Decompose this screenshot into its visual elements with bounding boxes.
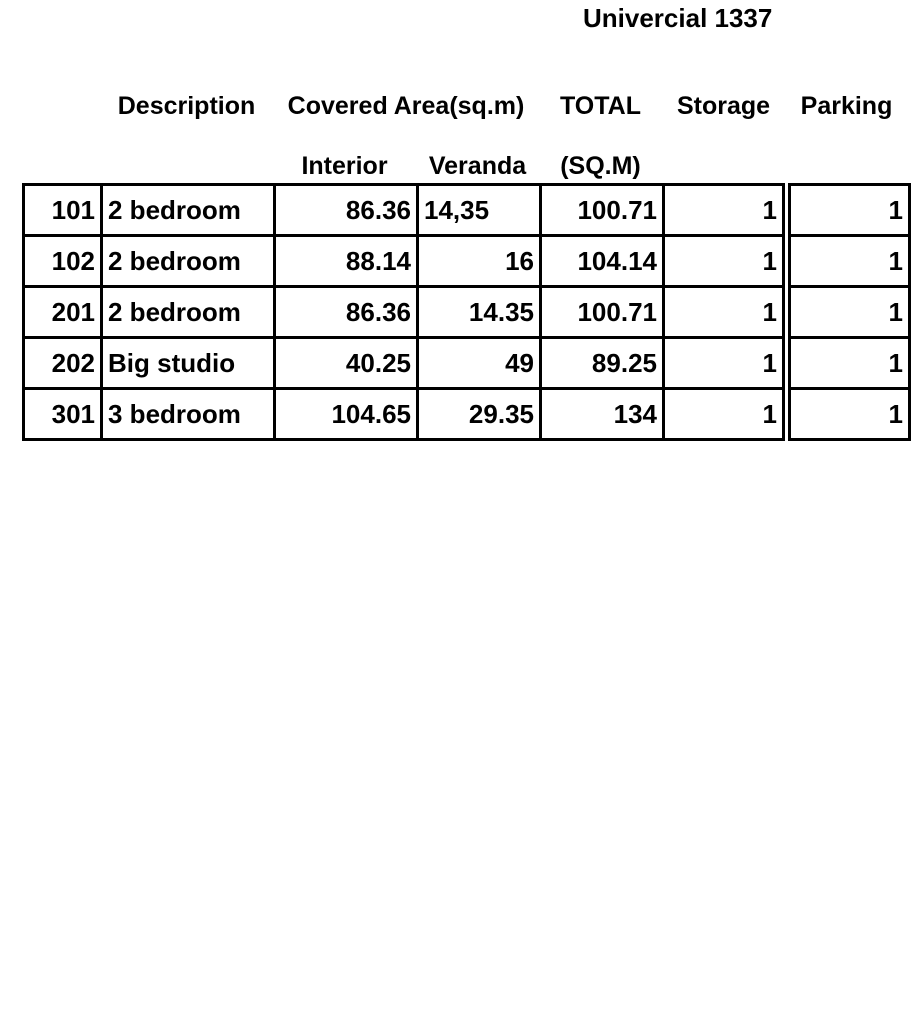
parking-cell: 1 (787, 287, 910, 338)
veranda-cell: 16 (418, 236, 541, 287)
description-cell: 2 bedroom (102, 287, 275, 338)
storage-cell: 1 (664, 236, 787, 287)
interior-cell: 40.25 (275, 338, 418, 389)
table-header-row-1: Description Covered Area(sq.m) TOTAL Sto… (22, 91, 908, 121)
storage-cell: 1 (664, 287, 787, 338)
interior-cell: 86.36 (275, 185, 418, 236)
description-cell: 2 bedroom (102, 185, 275, 236)
parking-cell: 1 (787, 185, 910, 236)
total-cell: 89.25 (541, 338, 664, 389)
unit-number-cell: 102 (24, 236, 102, 287)
veranda-cell: 14,35 (418, 185, 541, 236)
header-covered-area: Covered Area(sq.m) (273, 91, 539, 121)
description-cell: 3 bedroom (102, 389, 275, 440)
header-storage: Storage (662, 91, 785, 121)
interior-cell: 88.14 (275, 236, 418, 287)
interior-cell: 86.36 (275, 287, 418, 338)
header-spacer (22, 91, 100, 121)
parking-cell: 1 (787, 236, 910, 287)
units-table: 101 2 bedroom 86.36 14,35 100.71 1 1 102… (22, 183, 911, 441)
storage-cell: 1 (664, 389, 787, 440)
storage-cell: 1 (664, 338, 787, 389)
header-description: Description (100, 91, 273, 121)
unit-number-cell: 201 (24, 287, 102, 338)
table-row: 201 2 bedroom 86.36 14.35 100.71 1 1 (24, 287, 910, 338)
table-row: 301 3 bedroom 104.65 29.35 134 1 1 (24, 389, 910, 440)
header-spacer (22, 151, 273, 181)
description-cell: 2 bedroom (102, 236, 275, 287)
description-cell: Big studio (102, 338, 275, 389)
veranda-cell: 29.35 (418, 389, 541, 440)
veranda-cell: 49 (418, 338, 541, 389)
table-row: 102 2 bedroom 88.14 16 104.14 1 1 (24, 236, 910, 287)
total-cell: 100.71 (541, 287, 664, 338)
parking-cell: 1 (787, 389, 910, 440)
parking-cell: 1 (787, 338, 910, 389)
header-total: TOTAL (539, 91, 662, 121)
storage-cell: 1 (664, 185, 787, 236)
table-row: 101 2 bedroom 86.36 14,35 100.71 1 1 (24, 185, 910, 236)
veranda-cell: 14.35 (418, 287, 541, 338)
page-title: Univercial 1337 (583, 3, 772, 33)
unit-number-cell: 101 (24, 185, 102, 236)
interior-cell: 104.65 (275, 389, 418, 440)
unit-number-cell: 202 (24, 338, 102, 389)
table-row: 202 Big studio 40.25 49 89.25 1 1 (24, 338, 910, 389)
total-cell: 100.71 (541, 185, 664, 236)
unit-number-cell: 301 (24, 389, 102, 440)
header-parking: Parking (785, 91, 908, 121)
header-sqm: (SQ.M) (539, 151, 662, 181)
header-interior: Interior (273, 151, 416, 181)
header-veranda: Veranda (416, 151, 539, 181)
total-cell: 134 (541, 389, 664, 440)
table-header-row-2: Interior Veranda (SQ.M) (22, 151, 908, 181)
total-cell: 104.14 (541, 236, 664, 287)
